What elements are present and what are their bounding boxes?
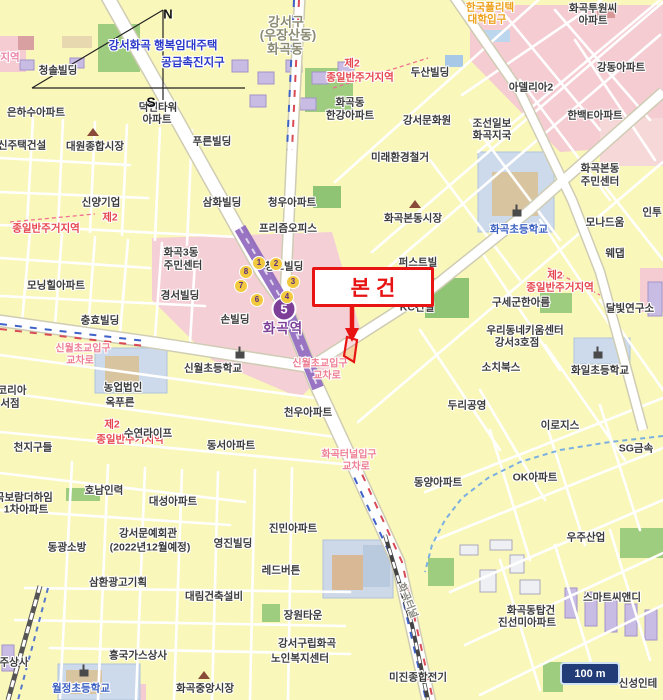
map-label: 한강아파트 bbox=[326, 108, 374, 123]
station-exit-badge: 1 bbox=[252, 256, 266, 270]
map-label: 진민아파트 bbox=[269, 521, 317, 536]
map-label: 동서아파트 bbox=[207, 438, 255, 453]
map-label: 은하수아파트 bbox=[7, 105, 65, 120]
junction-label: 교차로 bbox=[313, 367, 341, 382]
subject-property-label: 본건 bbox=[351, 272, 402, 302]
map-label: 호남인력 bbox=[85, 483, 124, 498]
map-label: 푸른빌딩 bbox=[193, 134, 232, 149]
subject-property-callout: 본건 bbox=[312, 267, 434, 307]
map-label: 모나드움 bbox=[586, 215, 625, 230]
map-label: 소치북스 bbox=[482, 360, 521, 375]
station-exit-badge: 4 bbox=[280, 290, 294, 304]
map-label: 농업법인 bbox=[104, 380, 143, 395]
map-label: 청우아파트 bbox=[268, 195, 316, 210]
map-label: 진선미아파트 bbox=[498, 615, 556, 630]
map-label: 구세군한아름 bbox=[492, 295, 550, 310]
map-label: 충효빌딩 bbox=[81, 313, 120, 328]
map-label: 천지구들 bbox=[14, 440, 53, 455]
map-label: 강서화곡 행복임대주택 bbox=[109, 37, 218, 53]
map-label: 미진종합전기 bbox=[389, 670, 447, 685]
map-label: 프리즘오피스 bbox=[259, 221, 317, 236]
map-label: 화곡지국 bbox=[473, 128, 512, 143]
compass-north-label: N bbox=[163, 7, 172, 22]
map-label: 레드버튼 bbox=[262, 563, 301, 578]
map-label: 흥국가스상사 bbox=[109, 648, 167, 663]
map-label: 제2 bbox=[104, 417, 120, 432]
map-label: 두산빌딩 bbox=[411, 65, 450, 80]
map-label: 삼환광고기획 bbox=[89, 575, 147, 590]
map-label: 경서빌딩 bbox=[161, 288, 200, 303]
map-label: 화곡본동시장 bbox=[384, 211, 442, 226]
school-icon bbox=[236, 352, 245, 359]
map-label: 삼화빌딩 bbox=[203, 195, 242, 210]
map-label: 지역 bbox=[0, 50, 19, 65]
map-label: 동양아파트 bbox=[414, 475, 462, 490]
map-label: 영진빌딩 bbox=[214, 536, 253, 551]
map-label: 아델리아2 bbox=[509, 80, 553, 95]
map-label: 모닝힐아파트 bbox=[27, 278, 85, 293]
map-label: 손빌딩 bbox=[221, 312, 250, 327]
map-label: 대성아파트 bbox=[149, 494, 197, 509]
map-label: 종일반주거지역 bbox=[326, 70, 394, 85]
school-icon bbox=[80, 670, 89, 677]
map-label: 청솔빌딩 bbox=[39, 63, 78, 78]
map-label: 미래환경철거 bbox=[371, 150, 429, 165]
map-label: 주민센터 bbox=[164, 258, 203, 273]
map-canvas[interactable]: N S 5 본건 100 m 강서구(우장산동)화곡동강서화곡 행복임대주택공급… bbox=[0, 0, 663, 700]
market-icon bbox=[198, 671, 210, 679]
map-label: 대림건축설비 bbox=[185, 589, 243, 604]
map-label: 제2 bbox=[102, 210, 118, 225]
station-exit-badge: 8 bbox=[239, 265, 253, 279]
station-exit-badge: 2 bbox=[269, 257, 283, 271]
map-label: 제2 bbox=[344, 56, 360, 71]
map-label: 신성인테 bbox=[619, 676, 658, 691]
map-label: 동광소방 bbox=[48, 540, 87, 555]
station-exit-badge: 7 bbox=[234, 279, 248, 293]
map-label: (2022년12월예정) bbox=[110, 540, 191, 555]
map-label: 인투 bbox=[642, 205, 661, 220]
map-label: 신양기업 bbox=[82, 195, 121, 210]
scale-bar: 100 m bbox=[560, 662, 620, 685]
junction-label: 교차로 bbox=[342, 458, 370, 473]
junction-label: 교차로 bbox=[66, 352, 94, 367]
school-icon bbox=[594, 352, 603, 359]
map-label: 화곡초등학교 bbox=[490, 222, 548, 237]
map-label: 주민센터 bbox=[581, 174, 620, 189]
map-label: 이로지스 bbox=[541, 418, 580, 433]
map-label: 스마트씨앤디 bbox=[583, 590, 641, 605]
map-label: 웨댑 bbox=[605, 246, 624, 261]
map-label: 신월초등학교 bbox=[184, 361, 242, 376]
map-label: 주상사 bbox=[0, 655, 28, 670]
map-label: 천우아파트 bbox=[284, 405, 332, 420]
market-icon bbox=[87, 128, 99, 136]
map-label: 공급촉진지구 bbox=[161, 54, 224, 70]
station-exit-badge: 3 bbox=[286, 275, 300, 289]
map-label: 화곡동 bbox=[267, 39, 303, 58]
compass-south-label: S bbox=[146, 94, 155, 110]
map-label: 종일반주거지역 bbox=[526, 280, 594, 295]
map-label: 화곡중앙시장 bbox=[176, 681, 234, 696]
map-label: 두리공영 bbox=[448, 398, 487, 413]
map-label: 아파트 bbox=[579, 13, 608, 28]
map-label: 강동아파트 bbox=[597, 60, 645, 75]
map-label: 노인복지센터 bbox=[271, 651, 329, 666]
school-icon bbox=[513, 210, 522, 217]
market-icon bbox=[409, 200, 421, 208]
map-label: 강서문예회관 bbox=[119, 526, 177, 541]
map-label: 우주산업 bbox=[567, 530, 606, 545]
map-label: 서점 bbox=[0, 396, 19, 411]
map-label: 월정초등학교 bbox=[52, 681, 110, 696]
map-label: 한백E아파트 bbox=[567, 108, 622, 123]
map-label: 대학입구 bbox=[468, 12, 507, 27]
map-label: 대원종합시장 bbox=[66, 139, 124, 154]
map-label: 아파트 bbox=[143, 112, 172, 127]
map-label: 달빛연구소 bbox=[606, 301, 654, 316]
map-label: 강서문화원 bbox=[403, 113, 451, 128]
map-label: 신주택건설 bbox=[0, 138, 46, 153]
map-label: 종일반주거지역 bbox=[12, 221, 80, 236]
map-label: 장원타운 bbox=[284, 608, 323, 623]
map-label: SG금속 bbox=[619, 441, 654, 456]
map-label: 강서3호점 bbox=[495, 335, 539, 350]
map-label: 수연라이프 bbox=[124, 426, 172, 441]
station-exit-badge: 6 bbox=[250, 293, 264, 307]
map-label: 화일초등학교 bbox=[571, 363, 629, 378]
map-label: 강서구립화곡 bbox=[278, 636, 336, 651]
map-label: OK아파트 bbox=[513, 470, 558, 485]
map-label: 옥푸른 bbox=[106, 395, 135, 410]
map-label: 1차아파트 bbox=[4, 502, 48, 517]
